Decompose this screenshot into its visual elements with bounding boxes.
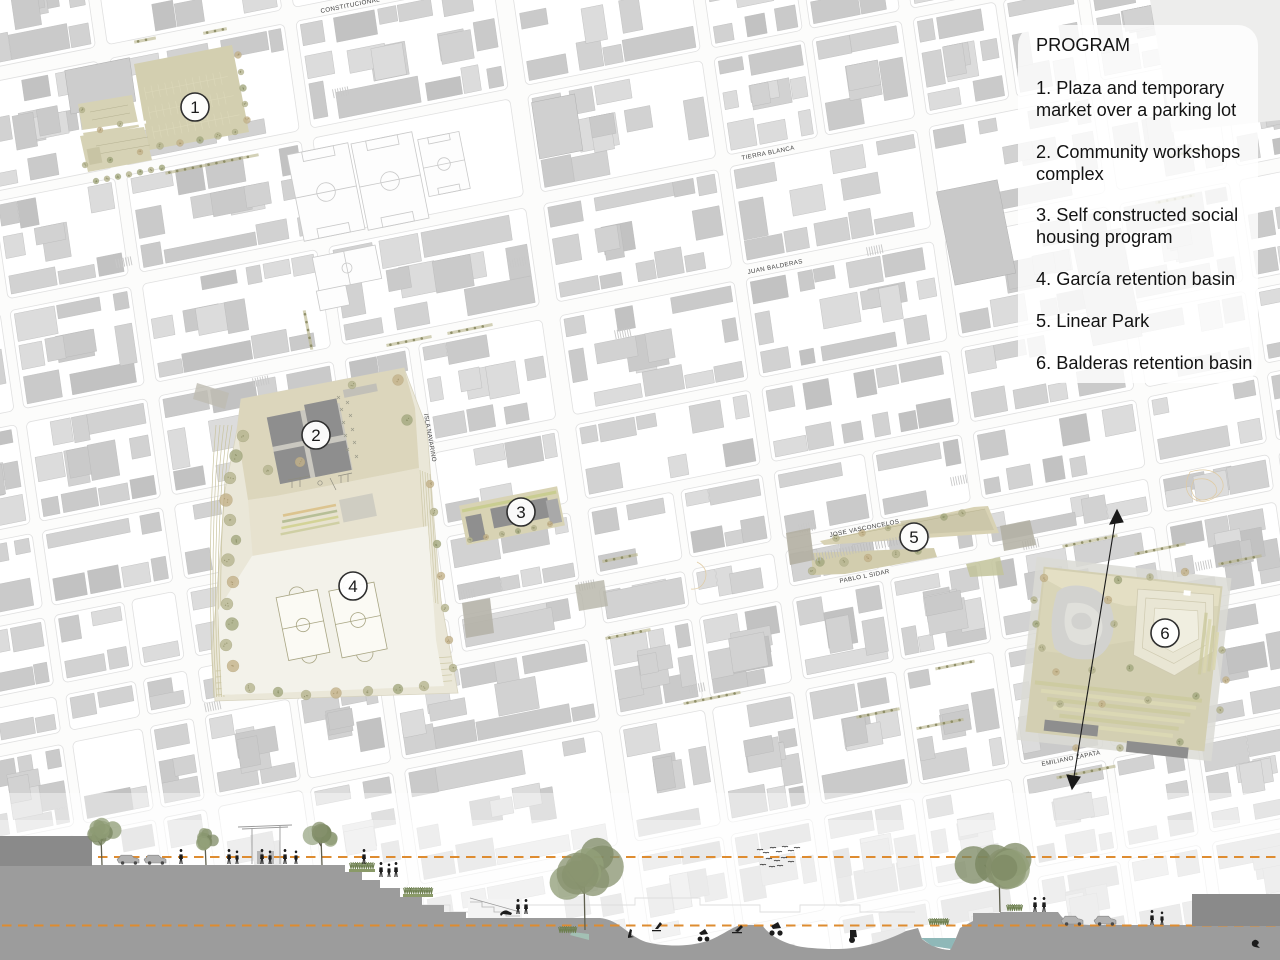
svg-text:1. Plaza and temporary: 1. Plaza and temporary <box>1036 78 1225 98</box>
svg-text:3: 3 <box>516 503 525 522</box>
svg-text:3. Self constructed social: 3. Self constructed social <box>1036 205 1238 225</box>
svg-text:6: 6 <box>1160 624 1169 643</box>
svg-text:2: 2 <box>311 426 320 445</box>
svg-text:4. García retention basin: 4. García retention basin <box>1036 269 1235 289</box>
svg-text:PROGRAM: PROGRAM <box>1036 35 1130 55</box>
svg-text:1: 1 <box>190 98 199 117</box>
svg-text:5. Linear Park: 5. Linear Park <box>1036 311 1150 331</box>
svg-text:5: 5 <box>909 528 918 547</box>
svg-text:complex: complex <box>1036 164 1104 184</box>
svg-text:4: 4 <box>348 577 357 596</box>
svg-text:housing program: housing program <box>1036 227 1173 247</box>
svg-text:6. Balderas retention basin: 6. Balderas retention basin <box>1036 353 1252 373</box>
svg-text:market over a parking lot: market over a parking lot <box>1036 100 1236 120</box>
svg-text:2. Community workshops: 2. Community workshops <box>1036 142 1240 162</box>
